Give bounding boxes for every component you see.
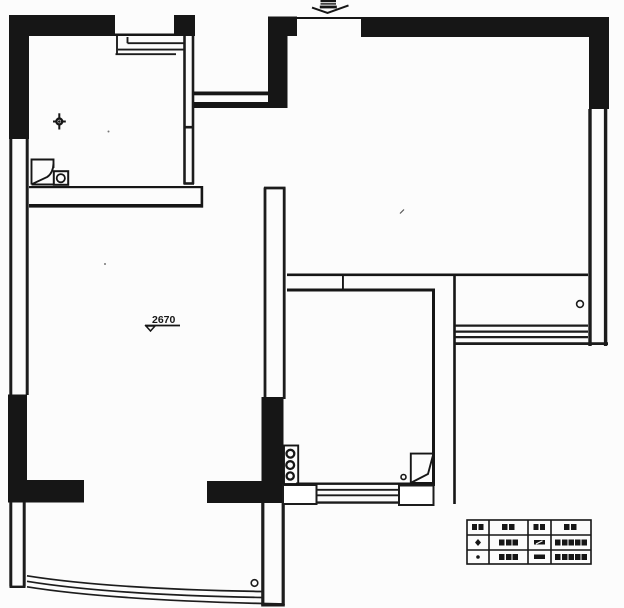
svg-text:2670: 2670	[152, 314, 176, 326]
